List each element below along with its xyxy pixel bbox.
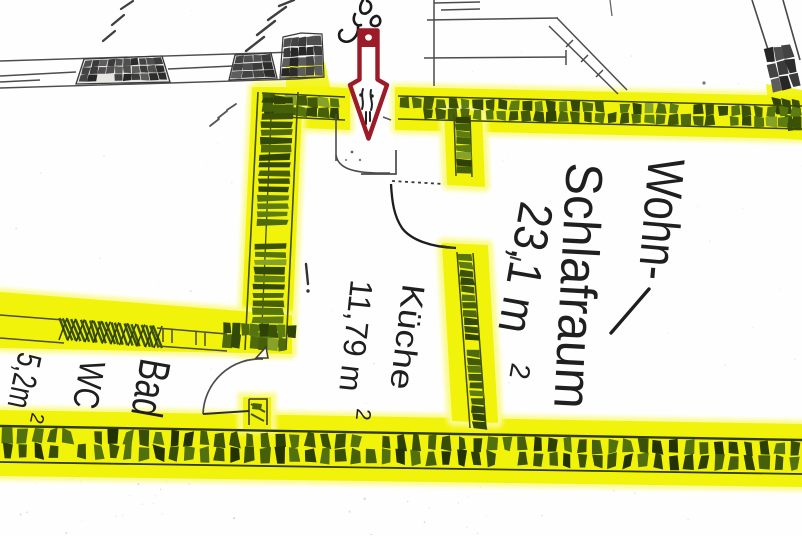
svg-text:Wohn-: Wohn- [626,156,694,283]
svg-text:Bad: Bad [121,355,179,421]
svg-text:2: 2 [351,407,375,421]
svg-text:WC: WC [65,358,114,412]
